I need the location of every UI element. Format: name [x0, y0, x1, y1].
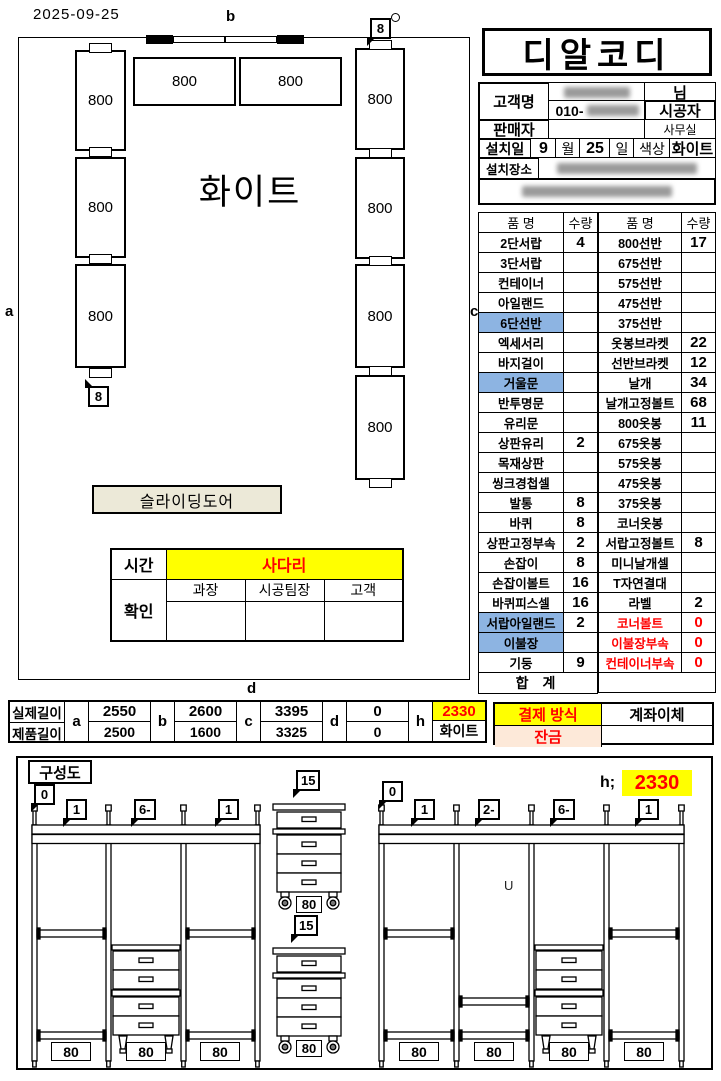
item-qty: [564, 273, 598, 293]
length-group: h 2330 화이트: [409, 702, 485, 741]
bay-callout: 6-: [553, 799, 575, 820]
product-length-value: 화이트: [433, 721, 485, 741]
item-row: 거울문: [479, 373, 598, 393]
cabinet-plan-box: 800: [75, 264, 126, 368]
composition-title: 구성도: [28, 760, 92, 784]
item-qty: [682, 273, 716, 293]
install-day: 25: [579, 138, 611, 159]
item-row: 손잡이볼트16: [479, 573, 598, 593]
place-value-cell: [538, 157, 716, 180]
item-row: 컨테이너: [479, 273, 598, 293]
item-name: 손잡이볼트: [479, 573, 564, 593]
phone-prefix: 010-: [555, 103, 583, 119]
payment-method-label: 결제 방식: [495, 704, 602, 726]
item-qty: 2: [564, 433, 598, 453]
item-row: 선반브라켓12: [599, 353, 716, 373]
item-row: 미니날개셀: [599, 553, 716, 573]
connector-tab: [369, 478, 392, 488]
item-row: 라벨2: [599, 593, 716, 613]
cabinet-width-label: 800: [88, 199, 113, 216]
actual-length-value: 2330: [433, 702, 485, 721]
item-row: T자연결대: [599, 573, 716, 593]
sign-cell: [166, 601, 245, 641]
connector-tab: [369, 148, 392, 158]
time-value: 사다리: [166, 549, 403, 579]
plan-callout-top: 8: [370, 18, 391, 39]
item-qty: 9: [564, 653, 598, 673]
item-name: 475옷봉: [599, 473, 682, 493]
items-left-header-name: 품 명: [479, 213, 564, 233]
install-month: 9: [530, 138, 557, 159]
length-key: d: [323, 702, 347, 741]
product-length-value: 0: [347, 722, 408, 741]
window-jamb-left: [146, 35, 173, 44]
item-qty: [682, 573, 716, 593]
item-row: 코너볼트0: [599, 613, 716, 633]
signer-customer: 고객: [324, 579, 403, 601]
office-label: 사무실: [644, 119, 716, 140]
item-name: 상판고정부속: [479, 533, 564, 553]
bay-width-label: 80: [126, 1042, 166, 1061]
cabinet-plan-box: 800: [355, 375, 405, 480]
item-name: 코너옷봉: [599, 513, 682, 533]
item-qty: 0: [682, 613, 716, 633]
sign-cell: [245, 601, 324, 641]
place-value-cell-2: [478, 178, 716, 205]
item-row: 800선반17: [599, 233, 716, 253]
length-key: h: [409, 702, 433, 741]
connector-tab: [369, 366, 392, 376]
length-group: b 2600 1600: [151, 702, 237, 741]
installer-label: 시공자: [644, 100, 716, 121]
item-row: 기둥9: [479, 653, 598, 673]
length-row-labels: 실제길이 제품길이: [10, 702, 65, 741]
confirm-table: 시간 사다리 확인 과장 시공팀장 고객: [110, 548, 404, 642]
item-name: 바퀴: [479, 513, 564, 533]
product-length-value: 2500: [89, 722, 150, 741]
item-name: 날개: [599, 373, 682, 393]
product-length-value: 3325: [261, 722, 322, 741]
item-name: 375선반: [599, 313, 682, 333]
item-qty: [564, 393, 598, 413]
cabinet-plan-box: 800: [75, 157, 126, 258]
bay-callout: 0: [34, 784, 55, 805]
bay-width-label: 80: [624, 1042, 664, 1061]
bay-callout: 6-: [134, 799, 156, 820]
item-qty: 34: [682, 373, 716, 393]
items-right-header-name: 품 명: [599, 213, 682, 233]
length-group: d 0 0: [323, 702, 409, 741]
item-qty: [564, 293, 598, 313]
item-name: 발통: [479, 493, 564, 513]
cabinet-plan-box: 800: [239, 57, 342, 106]
item-qty: 0: [682, 653, 716, 673]
item-row: 바지걸이: [479, 353, 598, 373]
item-name: 675옷봉: [599, 433, 682, 453]
signer-team-lead: 시공팀장: [245, 579, 324, 601]
color-label: 색상: [633, 138, 671, 159]
item-name: 6단선반: [479, 313, 564, 333]
item-name: 이불장부속: [599, 633, 682, 653]
items-right-header-qty: 수량: [682, 213, 716, 233]
item-row: 575선반: [599, 273, 716, 293]
balance-label: 잔금: [495, 726, 602, 747]
payment-method-value: 계좌이체: [602, 704, 712, 726]
wall-label-d: d: [247, 680, 256, 697]
item-name: 컨테이너: [479, 273, 564, 293]
item-row: 상판유리2: [479, 433, 598, 453]
item-row: 2단서랍4: [479, 233, 598, 253]
item-qty: [682, 433, 716, 453]
item-qty: [564, 313, 598, 333]
item-name: 475선반: [599, 293, 682, 313]
item-row: 바퀴피스셀16: [479, 593, 598, 613]
connector-tab: [89, 147, 112, 157]
item-row: 반투명문: [479, 393, 598, 413]
item-qty: 8: [682, 533, 716, 553]
seller-label: 판매자: [478, 119, 550, 140]
plan-left-column: 800800800: [75, 50, 126, 380]
bay-callout: 1: [638, 799, 659, 820]
payment-table: 결제 방식 계좌이체 잔금: [493, 702, 714, 745]
product-length-value: 1600: [175, 722, 236, 741]
item-name: 선반브라켓: [599, 353, 682, 373]
item-name: 컨테이너부속: [599, 653, 682, 673]
item-name: 거울문: [479, 373, 564, 393]
seller-value-cell: [548, 119, 646, 140]
plan-callout-bottom: 8: [88, 386, 109, 407]
item-row: 옷봉브라켓22: [599, 333, 716, 353]
item-qty: [682, 553, 716, 573]
item-row: 475선반: [599, 293, 716, 313]
sliding-door-box: 슬라이딩도어: [92, 485, 282, 514]
item-qty: 8: [564, 553, 598, 573]
item-qty: [682, 313, 716, 333]
connector-tab: [369, 256, 392, 266]
item-qty: 22: [682, 333, 716, 353]
actual-length-value: 3395: [261, 702, 322, 722]
item-row: 유리문: [479, 413, 598, 433]
cabinet-width-label: 800: [88, 92, 113, 109]
item-row: 날개고정볼트68: [599, 393, 716, 413]
height-value: 2330: [622, 770, 692, 796]
wall-label-a: a: [5, 303, 13, 320]
item-name: 바퀴피스셀: [479, 593, 564, 613]
item-qty: [564, 253, 598, 273]
cabinet-plan-box: 800: [355, 264, 405, 368]
item-row: 엑세서리: [479, 333, 598, 353]
sign-cell: [324, 601, 403, 641]
item-name: 575선반: [599, 273, 682, 293]
item-name: 반투명문: [479, 393, 564, 413]
plan-color-text: 화이트: [185, 166, 315, 212]
total-label: 합 계: [479, 673, 598, 694]
cabinet-width-label: 800: [88, 308, 113, 325]
item-qty: [682, 253, 716, 273]
bay-callout: 0: [382, 781, 403, 802]
item-row: 이불장부속0: [599, 633, 716, 653]
item-row: 375선반: [599, 313, 716, 333]
length-group: c 3395 3325: [237, 702, 323, 741]
item-name: T자연결대: [599, 573, 682, 593]
item-name: 800선반: [599, 233, 682, 253]
item-name: 라벨: [599, 593, 682, 613]
item-row: 바퀴8: [479, 513, 598, 533]
items-left-header-qty: 수량: [564, 213, 598, 233]
redacted-customer-name: [564, 87, 630, 98]
connector-tab: [89, 368, 112, 378]
item-qty: 2: [564, 613, 598, 633]
item-name: 엑세서리: [479, 333, 564, 353]
item-row: 800옷봉11: [599, 413, 716, 433]
item-qty: 17: [682, 233, 716, 253]
month-unit: 월: [555, 138, 581, 159]
redacted-phone: [587, 105, 639, 116]
customer-phone-cell: 010-: [548, 100, 646, 121]
item-row: 675선반: [599, 253, 716, 273]
item-qty: 11: [682, 413, 716, 433]
item-row: 상판고정부속2: [479, 533, 598, 553]
name-suffix: 님: [644, 82, 716, 102]
unit-callout: 15: [294, 915, 318, 936]
unit-callout: 15: [296, 770, 320, 791]
item-row: 목재상판: [479, 453, 598, 473]
item-qty: [682, 493, 716, 513]
item-row: 475옷봉: [599, 473, 716, 493]
length-key: b: [151, 702, 175, 741]
item-row: 코너옷봉: [599, 513, 716, 533]
item-name: 375옷봉: [599, 493, 682, 513]
item-row: 서랍고정볼트8: [599, 533, 716, 553]
item-qty: [564, 353, 598, 373]
cabinet-plan-box: 800: [133, 57, 236, 106]
cabinet-width-label: 800: [367, 200, 392, 217]
length-key: a: [65, 702, 89, 741]
item-qty: 0: [682, 633, 716, 653]
height-label: h;: [600, 774, 615, 792]
item-name: 아일랜드: [479, 293, 564, 313]
item-row: 이불장: [479, 633, 598, 653]
cabinet-width-label: 800: [172, 73, 197, 90]
item-name: 바지걸이: [479, 353, 564, 373]
composition-section: 구성도: [16, 756, 713, 1070]
balance-value: [602, 726, 712, 747]
install-date-label: 설치일: [478, 138, 532, 159]
item-row: 675옷봉: [599, 433, 716, 453]
item-row: 6단선반: [479, 313, 598, 333]
item-name: 유리문: [479, 413, 564, 433]
item-qty: 4: [564, 233, 598, 253]
customer-label: 고객명: [478, 82, 550, 121]
actual-length-label: 실제길이: [10, 702, 64, 723]
item-name: 상판유리: [479, 433, 564, 453]
item-name: 2단서랍: [479, 233, 564, 253]
item-qty: 8: [564, 493, 598, 513]
empty-row: [599, 673, 716, 693]
item-qty: [564, 373, 598, 393]
item-qty: 12: [682, 353, 716, 373]
item-row: 발통8: [479, 493, 598, 513]
item-qty: [682, 473, 716, 493]
bay-width-label: 80: [200, 1042, 240, 1061]
door-pivot-circle: [391, 13, 400, 22]
place-label: 설치장소: [478, 157, 540, 180]
item-row: 아일랜드: [479, 293, 598, 313]
item-row: 날개34: [599, 373, 716, 393]
elevation-drawing: [18, 758, 711, 1068]
item-qty: [564, 413, 598, 433]
signer-manager: 과장: [166, 579, 245, 601]
unit-width-label: 80: [296, 1040, 322, 1057]
plan-date: 2025-09-25: [33, 6, 120, 23]
company-title: 디알코디: [482, 28, 712, 76]
window-jamb-right: [277, 35, 304, 44]
day-unit: 일: [609, 138, 635, 159]
item-name: 미니날개셀: [599, 553, 682, 573]
connector-tab: [89, 254, 112, 264]
item-qty: [682, 513, 716, 533]
item-qty: 16: [564, 593, 598, 613]
bay-callout: 1: [66, 799, 87, 820]
color-value: 화이트: [669, 138, 716, 159]
window-mullion: [224, 36, 226, 43]
plan-right-column: 800800800800: [355, 48, 405, 488]
redacted-address-1: [557, 163, 697, 174]
item-qty: [682, 293, 716, 313]
items-table-left: 품 명 수량 2단서랍43단서랍컨테이너아일랜드6단선반엑세서리바지걸이거울문반…: [478, 212, 598, 694]
item-qty: 8: [564, 513, 598, 533]
redacted-address-2: [522, 186, 672, 197]
item-name: 서랍고정볼트: [599, 533, 682, 553]
item-name: 옷봉브라켓: [599, 333, 682, 353]
bay-callout: 1: [218, 799, 239, 820]
cabinet-width-label: 800: [367, 91, 392, 108]
item-name: 손잡이: [479, 553, 564, 573]
item-row: 3단서랍: [479, 253, 598, 273]
actual-length-value: 2550: [89, 702, 150, 722]
bay-width-label: 80: [51, 1042, 91, 1061]
cabinet-width-label: 800: [367, 308, 392, 325]
actual-length-value: 0: [347, 702, 408, 722]
item-row: 서랍아일랜드2: [479, 613, 598, 633]
customer-name-cell: [548, 82, 646, 102]
cabinet-plan-box: 800: [355, 157, 405, 259]
cabinet-width-label: 800: [278, 73, 303, 90]
wall-label-b: b: [226, 8, 235, 25]
item-qty: 68: [682, 393, 716, 413]
item-qty: [564, 333, 598, 353]
item-qty: [564, 633, 598, 653]
item-qty: 2: [564, 533, 598, 553]
item-name: 575옷봉: [599, 453, 682, 473]
bay-width-label: 80: [549, 1042, 589, 1061]
item-name: 기둥: [479, 653, 564, 673]
item-qty: [564, 453, 598, 473]
unit-width-label: 80: [296, 896, 322, 913]
item-name: 서랍아일랜드: [479, 613, 564, 633]
item-qty: [564, 473, 598, 493]
cabinet-width-label: 800: [367, 419, 392, 436]
order-sheet: 2025-09-25 b a c d 800800800 800800 8008…: [0, 0, 721, 1081]
item-name: 이불장: [479, 633, 564, 653]
plan-top-row: 800800: [133, 57, 343, 106]
item-row: 575옷봉: [599, 453, 716, 473]
time-label: 시간: [111, 549, 166, 579]
bay-width-label: 80: [474, 1042, 514, 1061]
bay-callout: 2-: [478, 799, 500, 820]
confirm-label: 확인: [111, 579, 166, 641]
product-length-label: 제품길이: [10, 723, 64, 743]
connector-tab: [89, 43, 112, 53]
length-table: 실제길이 제품길이 a 2550 2500 b 2600 1600: [8, 700, 487, 743]
item-name: 씽크경첩셀: [479, 473, 564, 493]
item-row: 375옷봉: [599, 493, 716, 513]
cabinet-plan-box: 800: [75, 50, 126, 151]
item-name: 목재상판: [479, 453, 564, 473]
item-qty: 16: [564, 573, 598, 593]
item-row: 씽크경첩셀: [479, 473, 598, 493]
actual-length-value: 2600: [175, 702, 236, 722]
item-qty: 2: [682, 593, 716, 613]
length-group: a 2550 2500: [65, 702, 151, 741]
item-name: 675선반: [599, 253, 682, 273]
item-name: 코너볼트: [599, 613, 682, 633]
item-name: 날개고정볼트: [599, 393, 682, 413]
item-row: 컨테이너부속0: [599, 653, 716, 673]
u-mark: U: [504, 878, 513, 893]
cabinet-plan-box: 800: [355, 48, 405, 150]
length-key: c: [237, 702, 261, 741]
length-columns: a 2550 2500 b 2600 1600 c: [65, 702, 485, 741]
items-table-right: 품 명 수량 800선반17675선반575선반475선반375선반옷봉브라켓2…: [598, 212, 716, 693]
item-name: 800옷봉: [599, 413, 682, 433]
item-name: 3단서랍: [479, 253, 564, 273]
bay-callout: 1: [414, 799, 435, 820]
item-row: 손잡이8: [479, 553, 598, 573]
bay-width-label: 80: [399, 1042, 439, 1061]
item-qty: [682, 453, 716, 473]
